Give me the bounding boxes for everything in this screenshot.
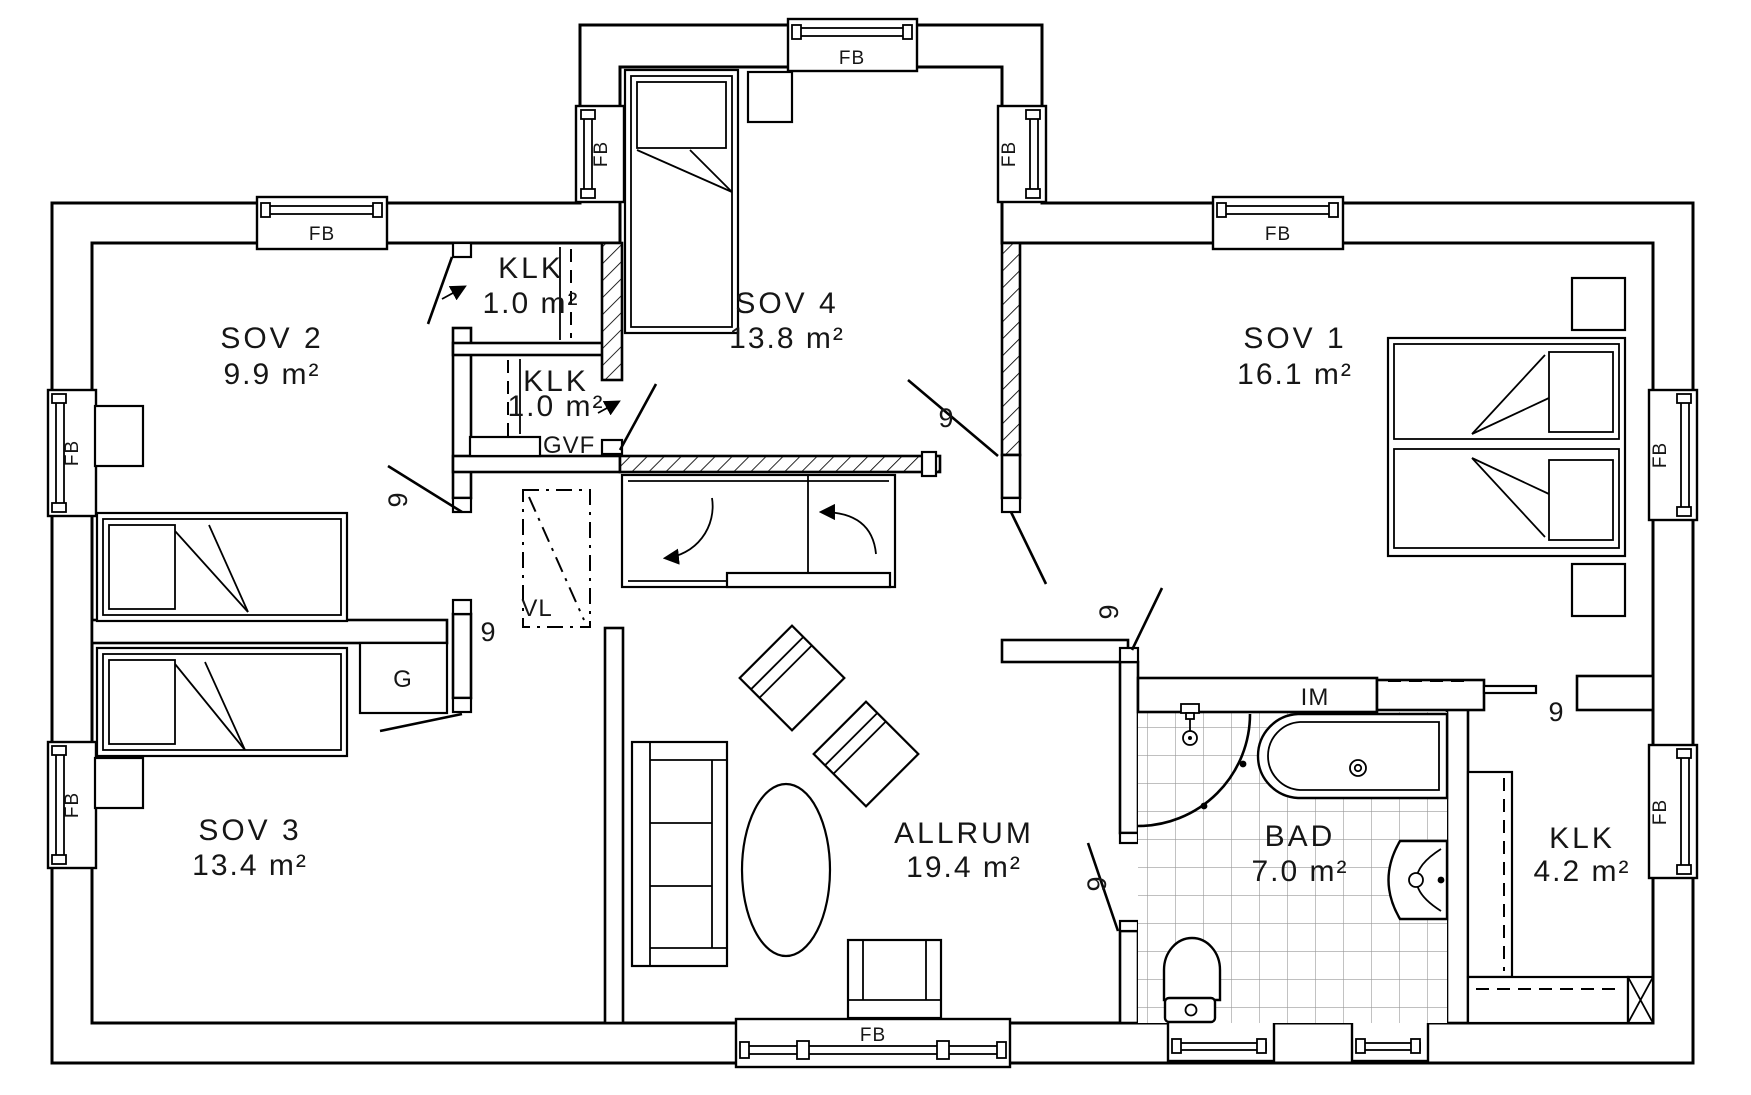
wall-corridor — [1002, 640, 1128, 662]
door-jamb — [453, 243, 471, 257]
door-leaf-klk-sov4 — [620, 384, 656, 450]
armchair-diagonal-2 — [814, 702, 919, 807]
wall-bad-klk — [1447, 706, 1468, 1023]
window-label-fb-5: FB — [999, 141, 1020, 167]
window-label-fb-4: FB — [591, 141, 612, 167]
window-label-fb-0: FB — [309, 224, 335, 245]
nightstand-sov2 — [95, 406, 143, 466]
room-area-sov-1-16.1-m-: 16.1 m² — [1237, 358, 1353, 391]
room-area-klk-1.0-m-: 1.0 m² — [482, 287, 579, 320]
door-jamb — [453, 498, 471, 512]
floor-plan-drawing: SOV 29.9 m²KLK1.0 m²KLK1.0 m²SOV 413.8 m… — [0, 0, 1751, 1095]
wall-bad-west-lower — [1120, 931, 1138, 1023]
bed-sov3 — [97, 648, 347, 756]
door-jamb — [1120, 648, 1138, 662]
nightstand-sov3 — [95, 758, 143, 808]
sofa — [632, 742, 727, 966]
wall-sov1-west-bearing — [1002, 243, 1020, 455]
door-leaf-corridor — [1011, 512, 1046, 584]
door-jamb — [602, 440, 622, 454]
wall-klk-north-stub — [1577, 676, 1653, 710]
door-width-label-2: 9 — [938, 403, 953, 433]
wall-sov2-sov3 — [92, 620, 447, 643]
wall-sov3-allrum — [605, 628, 623, 1023]
door-jamb — [453, 698, 471, 712]
coffee-table — [742, 784, 830, 956]
sliding-door-leaf — [1484, 686, 1536, 693]
armchair-diagonal-1 — [740, 626, 845, 731]
gvf-manifold — [470, 437, 540, 456]
room-label-sov-4-13.8-m-: SOV 4 — [735, 287, 838, 320]
room-area-klk-4.2-m-: 4.2 m² — [1533, 855, 1630, 888]
room-area-sov-3-13.4-m-: 13.4 m² — [192, 849, 308, 882]
wall-bearing-vertical — [602, 243, 622, 380]
nightstand-sov4 — [748, 72, 792, 122]
door-width-label-4: 9 — [1082, 876, 1112, 891]
closet-klk-right — [1468, 772, 1653, 1023]
floor-plan-page: SOV 29.9 m²KLK1.0 m²KLK1.0 m²SOV 413.8 m… — [0, 0, 1751, 1095]
door-width-label-3: 9 — [1094, 604, 1124, 619]
room-area-sov-2-9.9-m-: 9.9 m² — [223, 358, 320, 391]
wall-hall-north-bearing — [620, 456, 940, 472]
wall-bad-west-upper — [1120, 662, 1138, 833]
room-area-bad-7.0-m-: 7.0 m² — [1251, 855, 1348, 888]
door-jamb — [1120, 921, 1138, 931]
door-leaf-sov3 — [380, 714, 462, 731]
annotation-vl: VL — [521, 595, 552, 622]
wall-sov1-west — [1002, 455, 1020, 498]
chimney-box — [1628, 977, 1653, 1023]
bathtub — [1258, 714, 1447, 798]
door-jamb — [1002, 498, 1020, 512]
door-jamb — [453, 600, 471, 614]
room-label-sov-2-9.9-m-: SOV 2 — [220, 322, 323, 355]
annotation-g: G — [393, 666, 413, 693]
armchair-bottom — [848, 940, 941, 1018]
room-label-sov-1-16.1-m-: SOV 1 — [1243, 322, 1346, 355]
door-jamb — [922, 452, 936, 476]
wardrobe — [1468, 772, 1512, 977]
window-label-fb-8: FB — [1650, 442, 1671, 468]
sliding-door-pocket — [1377, 680, 1484, 710]
window-label-fb-6: FB — [62, 440, 83, 466]
door-jamb — [1120, 833, 1138, 843]
nightstand-sov1-top — [1572, 278, 1625, 330]
room-area-sov-4-13.8-m-: 13.8 m² — [729, 322, 845, 355]
cabinet-im — [1138, 678, 1377, 712]
door-leaf-klk-sov2 — [428, 257, 452, 324]
window-label-fb-3: FB — [860, 1025, 886, 1046]
door-leaf-sov1 — [1132, 588, 1162, 650]
room-label-klk-4.2-m-: KLK — [1549, 822, 1615, 855]
room-area-allrum-19.4-m-: 19.4 m² — [906, 851, 1022, 884]
window-label-fb-2: FB — [1265, 224, 1291, 245]
window-label-fb-1: FB — [839, 48, 865, 69]
bed-sov4 — [625, 70, 738, 333]
annotation-im: IM — [1301, 684, 1330, 711]
wall-klk-divider — [453, 343, 605, 355]
wall-hall-west-lower — [453, 614, 471, 698]
window-bottom-bad — [1168, 1021, 1274, 1061]
annotation-gvf: GVF — [543, 432, 595, 459]
room-label-klk-1.0-m-: KLK — [498, 252, 564, 285]
room-label-bad-7.0-m-: BAD — [1265, 820, 1336, 853]
room-label-allrum-19.4-m-: ALLRUM — [894, 817, 1034, 850]
window-label-fb-7: FB — [62, 792, 83, 818]
washbasin — [1389, 841, 1448, 919]
bed-sov2 — [97, 513, 347, 621]
shelf — [1468, 977, 1628, 1023]
bed-sov1 — [1388, 338, 1625, 556]
window-label-fb-9: FB — [1650, 799, 1671, 825]
room-label-sov-3-13.4-m-: SOV 3 — [198, 814, 301, 847]
door-width-label-0: 9 — [383, 492, 413, 507]
toilet — [1164, 938, 1220, 1022]
window-bottom-klk — [1352, 1021, 1428, 1061]
door-width-label-5: 9 — [1548, 697, 1563, 727]
sliding-closet — [622, 475, 895, 587]
door-width-label-1: 9 — [480, 617, 495, 647]
door-arrow — [442, 287, 464, 299]
room-area-klk-1.0-m-: 1.0 m² — [507, 390, 604, 423]
nightstand-sov1-bottom — [1572, 564, 1625, 616]
